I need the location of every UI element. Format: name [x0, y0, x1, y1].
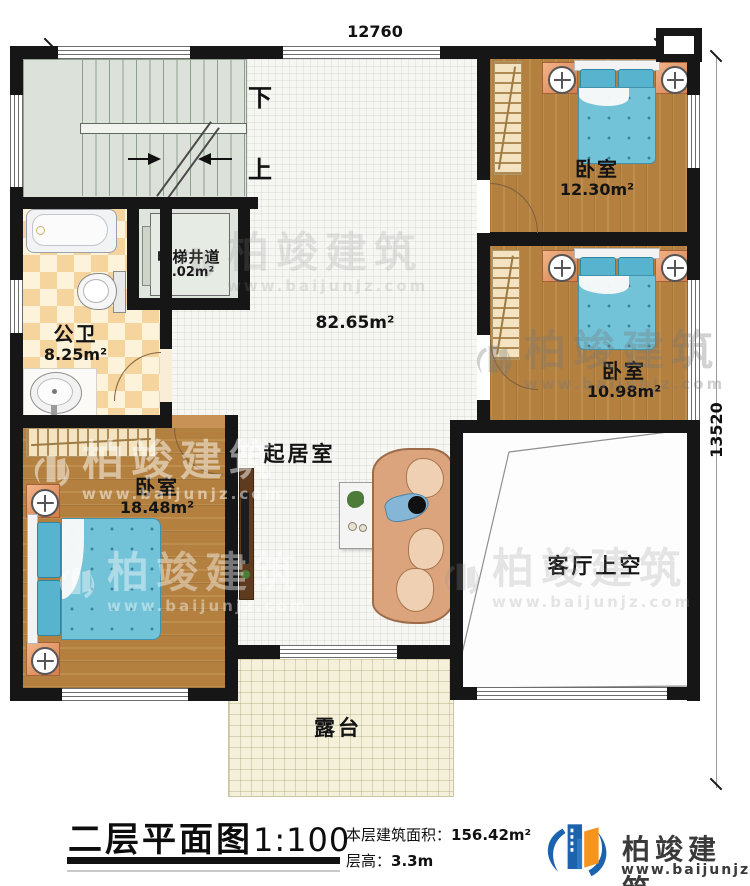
stair-arrow-line — [210, 158, 232, 160]
floor-height-value: 3.3m — [391, 852, 433, 870]
floor-area-value: 156.42m² — [451, 826, 531, 844]
wardrobe-rod — [498, 66, 516, 169]
void-left-wall — [450, 420, 463, 700]
right-dimension-label: 13520 — [707, 395, 727, 465]
door-opening — [477, 337, 490, 399]
floor-height-label: 层高： — [346, 852, 391, 870]
pillow — [618, 69, 654, 89]
living-area-label: 82.65m² — [285, 314, 425, 334]
sink-tap — [51, 405, 57, 415]
nightstand — [655, 62, 691, 94]
plan-scale: 1:100 — [253, 821, 350, 859]
lamp-icon — [548, 66, 576, 94]
nightstand — [26, 642, 60, 676]
sliding-door — [280, 645, 397, 659]
sofa — [372, 448, 454, 624]
bedroom-bl-right-wall — [225, 415, 238, 701]
stair-rail — [80, 123, 247, 134]
stair-arrow-line — [128, 158, 150, 160]
wardrobe-rod — [31, 438, 151, 446]
stair-up-label: 上 — [248, 150, 272, 185]
bed — [27, 518, 159, 640]
living-room-label: 起居室 — [242, 442, 357, 466]
floor-plan: 12760 13520 下 上 电梯井道 3.02m² — [0, 0, 750, 886]
window — [62, 688, 188, 701]
sofa-cushion — [408, 528, 444, 570]
tv-screen — [241, 492, 249, 564]
bedroom-mr-label: 卧室 10.98m² — [565, 360, 683, 401]
window — [687, 280, 700, 420]
pillow — [618, 257, 654, 277]
brand-logo-icon — [540, 820, 614, 882]
window — [687, 95, 700, 168]
bathtub — [26, 209, 117, 253]
lamp-icon — [31, 647, 59, 675]
lamp-icon — [548, 254, 576, 282]
plan-title: 二层平面图1:100 — [68, 812, 350, 861]
pillow — [37, 522, 61, 578]
console-plant — [241, 570, 250, 579]
sofa-cushion — [396, 568, 434, 612]
bathroom-right-wall — [160, 209, 172, 349]
stair-bottom-wall — [10, 197, 258, 209]
nightstand — [542, 62, 578, 94]
plan-title-text: 二层平面图 — [68, 820, 253, 860]
pillow — [37, 580, 61, 636]
top-dimension-label: 12760 — [300, 22, 450, 41]
bathroom-label: 公卫 8.25m² — [23, 323, 128, 364]
floor-area-label: 本层建筑面积： — [346, 826, 451, 844]
nightstand — [26, 484, 60, 518]
void-railing — [477, 687, 667, 700]
door-opening — [172, 415, 225, 428]
sink-drain — [52, 389, 57, 394]
pillow — [580, 257, 616, 277]
door-opening — [160, 349, 172, 402]
floor-height-info: 层高：3.3m — [346, 850, 433, 871]
stair-treads-upper — [82, 60, 245, 124]
elevator-label: 电梯井道 3.02m² — [127, 249, 250, 281]
brand-website: www.baijunjz.com — [621, 862, 750, 878]
table-plant — [347, 491, 364, 508]
bedroom-bl-label: 卧室 18.48m² — [98, 476, 216, 517]
bed — [578, 248, 654, 348]
table-cup — [359, 524, 367, 532]
window — [10, 280, 23, 333]
void-top-wall — [450, 420, 700, 433]
wardrobe — [26, 428, 156, 457]
sink — [30, 372, 82, 414]
bedrooms-left-wall-mid — [477, 233, 490, 335]
title-underline — [67, 857, 340, 864]
bathroom-bottom-wall — [10, 415, 172, 428]
toilet-bowl — [77, 273, 117, 310]
pillow — [580, 69, 616, 89]
toilet-seat — [83, 279, 109, 303]
wardrobe — [494, 61, 522, 175]
sofa-cushion — [406, 458, 444, 498]
lamp-icon — [661, 66, 689, 94]
bedroom-divider-wall — [490, 232, 700, 246]
terrace-label: 露台 — [288, 716, 388, 740]
bathtub-drain — [36, 226, 45, 235]
bed — [578, 60, 654, 162]
corner-column — [656, 28, 702, 62]
table-cup — [348, 522, 357, 531]
window — [283, 46, 440, 59]
nightstand — [542, 250, 578, 282]
floor-area-info: 本层建筑面积：156.42m² — [346, 824, 531, 845]
door-opening — [477, 181, 490, 233]
bedroom-tr-label: 卧室 12.30m² — [538, 158, 656, 199]
bedrooms-left-wall-upper — [477, 46, 490, 180]
stair-down-label: 下 — [248, 78, 272, 113]
title-underline-thin — [67, 870, 340, 872]
person-head — [408, 496, 426, 514]
void-label: 客厅上空 — [518, 554, 673, 578]
nightstand — [655, 250, 691, 282]
window — [58, 46, 190, 59]
lamp-icon — [31, 489, 59, 517]
window — [10, 95, 23, 187]
lamp-icon — [661, 254, 689, 282]
